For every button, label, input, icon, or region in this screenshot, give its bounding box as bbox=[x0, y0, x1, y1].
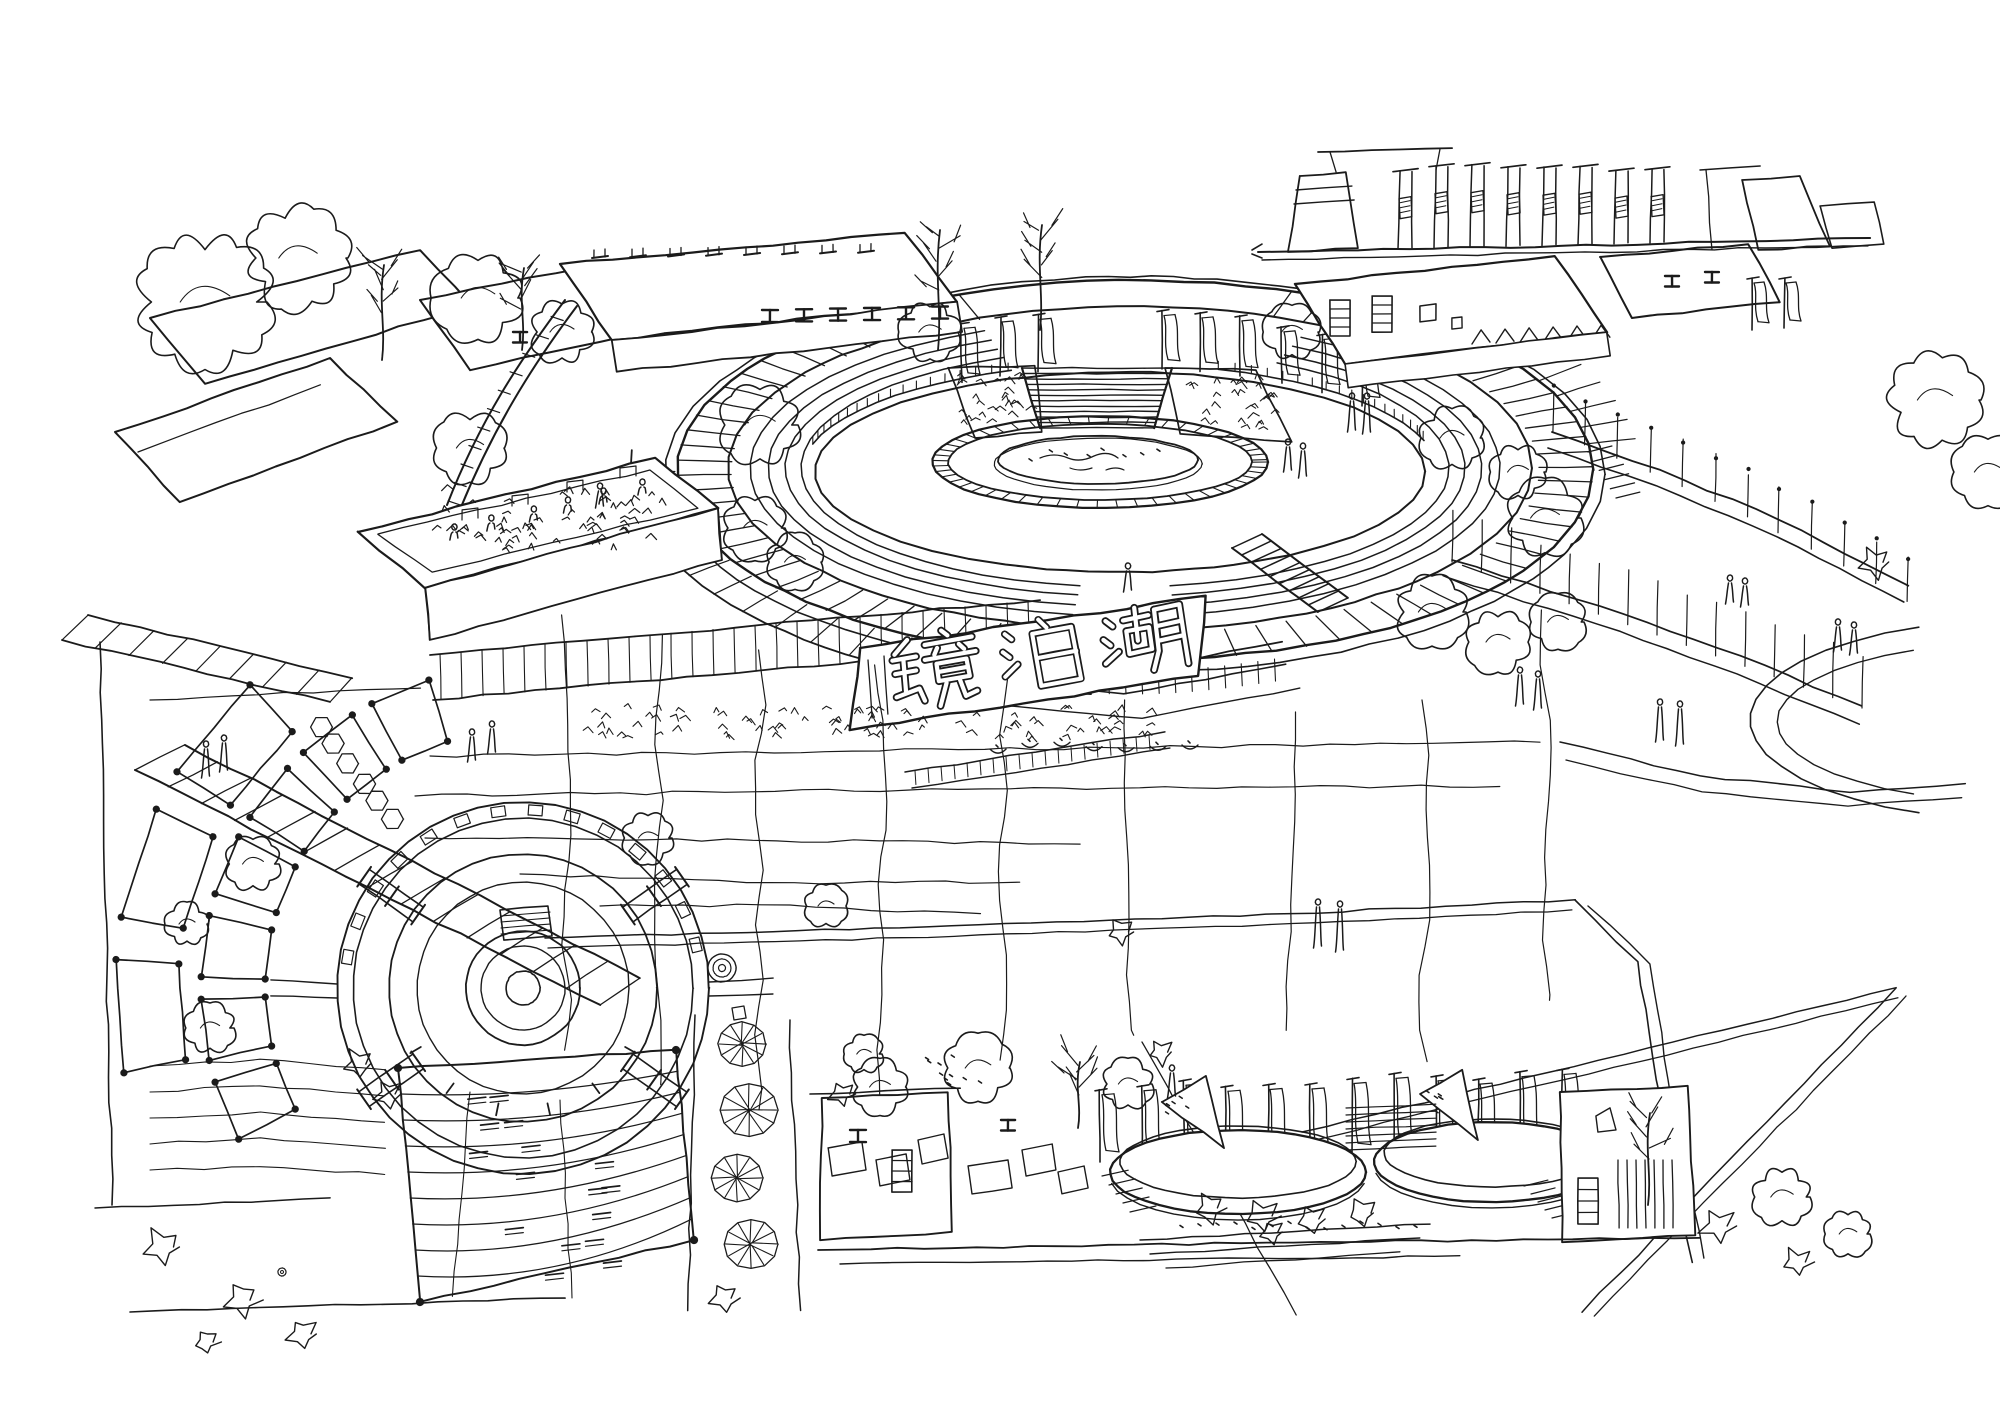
sketch-canvas: 镜泊湖 bbox=[0, 0, 2000, 1414]
sketch-page: 镜泊湖 bbox=[0, 0, 2000, 1414]
